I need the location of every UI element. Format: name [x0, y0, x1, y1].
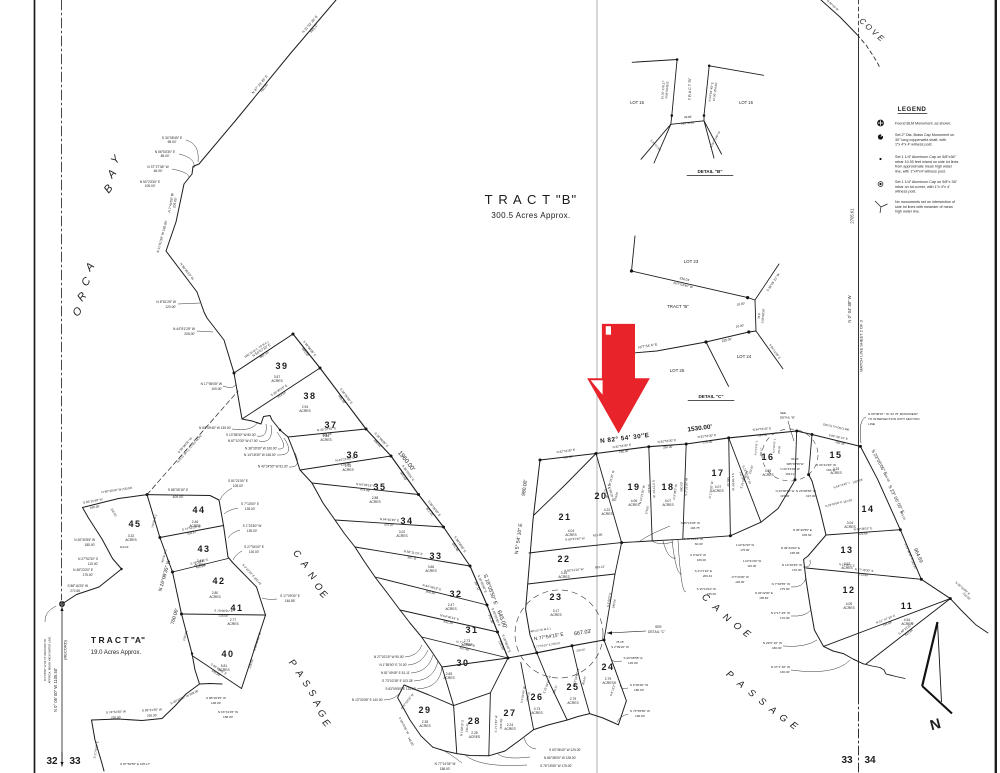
- svg-text:No monuments set on inters: No monuments set on intersection of: [895, 200, 956, 204]
- svg-text:300.5 Acres Approx.: 300.5 Acres Approx.: [491, 211, 570, 220]
- svg-text:ACRES: ACRES: [565, 533, 577, 537]
- svg-text:38: 38: [303, 391, 316, 401]
- svg-text:30″ long copperweld shaft, wit: 30″ long copperweld shaft, with: [895, 138, 946, 142]
- svg-text:T R A C T "A": T R A C T "A": [91, 635, 145, 645]
- svg-text:1.02°32′30″ W: 1.02°32′30″ W: [736, 543, 755, 547]
- svg-text:175.00': 175.00': [83, 573, 94, 577]
- svg-text:272.65: 272.65: [70, 589, 80, 593]
- svg-text:60.00': 60.00': [695, 542, 704, 546]
- svg-text:42: 42: [212, 576, 225, 586]
- svg-text:205.00': 205.00': [184, 332, 195, 336]
- svg-text:high water line.: high water line.: [895, 210, 920, 214]
- svg-text:ACRES: ACRES: [396, 534, 408, 538]
- svg-text:ACRES: ACRES: [445, 607, 457, 611]
- svg-text:N 63°31′45″ W: N 63°31′45″ W: [218, 710, 238, 714]
- svg-text:139.00': 139.00': [247, 529, 258, 533]
- svg-text:145.00': 145.00': [628, 661, 638, 665]
- svg-text:N 13°30′55″ E 140.00′: N 13°30′55″ E 140.00′: [352, 698, 383, 702]
- svg-text:31: 31: [465, 625, 478, 635]
- svg-text:579.87': 579.87': [647, 484, 651, 494]
- svg-text:S 0°02′2″ W: S 0°02′2″ W: [690, 553, 706, 557]
- svg-text:20: 20: [594, 491, 607, 501]
- svg-text:33: 33: [841, 755, 853, 766]
- svg-text:250.00': 250.00': [147, 713, 158, 718]
- svg-text:Set 1 1/4″ Aluminum Cap on 5/: Set 1 1/4″ Aluminum Cap on 5/8″x36″: [895, 155, 957, 159]
- svg-text:DETAIL "B": DETAIL "B": [780, 416, 795, 420]
- svg-text:Set 2″ Dia. Brass Cap Monument: Set 2″ Dia. Brass Cap Monument on: [895, 133, 954, 137]
- svg-text:S 63°36′40″ W 125.00′: S 63°36′40″ W 125.00′: [549, 748, 581, 752]
- svg-text:99.86': 99.86': [791, 457, 799, 461]
- svg-text:193.11': 193.11': [826, 468, 836, 472]
- svg-text:13: 13: [840, 545, 853, 555]
- svg-text:105.62': 105.62': [802, 533, 812, 537]
- svg-text:ACRES: ACRES: [550, 613, 562, 617]
- svg-text:25: 25: [566, 682, 579, 692]
- svg-text:110.23: 110.23: [120, 545, 129, 549]
- svg-text:130.00': 130.00': [780, 670, 790, 674]
- svg-text:30: 30: [456, 658, 469, 668]
- svg-text:S 7°13′00″ E: S 7°13′00″ E: [241, 502, 259, 506]
- svg-text:580.00': 580.00': [679, 481, 683, 491]
- svg-text:37: 37: [324, 420, 337, 430]
- svg-text:LOT 15: LOT 15: [739, 100, 754, 105]
- svg-text:ACRES: ACRES: [558, 575, 570, 579]
- svg-text:ACRES: ACRES: [194, 563, 206, 567]
- svg-text:LOT 25: LOT 25: [670, 368, 685, 373]
- svg-text:S 87°50′55″ E 105.17′: S 87°50′55″ E 105.17′: [120, 762, 150, 766]
- svg-text:ACRES: ACRES: [189, 524, 201, 528]
- svg-text:N 0° 06′ 00″ W 1105.50′: N 0° 06′ 00″ W 1105.50′: [53, 668, 58, 712]
- svg-text:ACRES: ACRES: [218, 668, 230, 672]
- svg-text:ACRES: ACRES: [342, 468, 354, 472]
- svg-text:ACRES: ACRES: [209, 595, 221, 599]
- svg-text:33: 33: [69, 756, 81, 767]
- svg-text:190.00': 190.00': [635, 714, 645, 718]
- svg-text:S 2°09′20″ W: S 2°09′20″ W: [611, 645, 629, 649]
- svg-text:ACRES: ACRES: [227, 622, 239, 626]
- svg-text:N 38°39′30″ W 160.00′: N 38°39′30″ W 160.00′: [245, 447, 277, 451]
- svg-text:41: 41: [230, 603, 243, 613]
- svg-text:DETAIL "B": DETAIL "B": [697, 169, 722, 174]
- svg-text:N 34°31′45″ W: N 34°31′45″ W: [816, 463, 836, 467]
- svg-text:197.00': 197.00': [780, 494, 790, 498]
- svg-text:32: 32: [46, 756, 58, 767]
- svg-text:100.00': 100.00': [211, 387, 222, 391]
- svg-text:from approximate mean high wat: from approximate mean high water: [895, 165, 953, 169]
- svg-text:S 20°08′55″ E: S 20°08′55″ E: [623, 656, 642, 660]
- svg-text:APPROX. MEAN HIGH WATER LINE: APPROX. MEAN HIGH WATER LINE: [48, 637, 52, 684]
- svg-text:SEE: SEE: [655, 625, 663, 629]
- svg-text:ACRES: ACRES: [843, 606, 855, 610]
- svg-text:N 23°08′50″ W: N 23°08′50″ W: [796, 489, 816, 493]
- svg-text:46.00': 46.00': [154, 169, 163, 173]
- svg-text:N 48°23′20″ E: N 48°23′20″ E: [73, 568, 93, 572]
- svg-text:N 1°55′00″ E 70.00′: N 1°55′00″ E 70.00′: [379, 663, 407, 667]
- svg-text:N 49°42′00″ E: N 49°42′00″ E: [781, 546, 800, 550]
- svg-text:36: 36: [346, 450, 359, 460]
- svg-text:146.85': 146.85': [285, 599, 296, 603]
- svg-text:Found BLM Monument, as shown: Found BLM Monument, as shown.: [895, 122, 951, 126]
- svg-text:(343.43): (343.43): [499, 718, 503, 729]
- svg-text:195.84': 195.84': [790, 551, 800, 555]
- svg-text:S85°45′55″W: S85°45′55″W: [786, 462, 803, 466]
- svg-text:115.00': 115.00': [88, 562, 99, 566]
- svg-text:35: 35: [373, 482, 386, 492]
- svg-text:586.43': 586.43': [726, 477, 730, 487]
- svg-text:witness post.: witness post.: [895, 190, 916, 194]
- svg-text:28: 28: [468, 716, 481, 726]
- svg-text:rebar 10.00 feet inland on sid: rebar 10.00 feet inland on side lot line…: [895, 160, 959, 164]
- svg-text:148.00': 148.00': [211, 701, 221, 705]
- svg-text:N 47°1′ 30″ W: N 47°1′ 30″ W: [771, 665, 790, 669]
- svg-text:N 8°51′25″ W: N 8°51′25″ W: [156, 300, 176, 304]
- svg-text:S 76°15′50″ W 175.00′: S 76°15′50″ W 175.00′: [540, 764, 572, 768]
- svg-text:15: 15: [829, 450, 842, 460]
- svg-text:DETAIL "C": DETAIL "C": [698, 394, 723, 399]
- svg-text:78.15': 78.15': [616, 640, 625, 644]
- svg-text:ACRES: ACRES: [531, 711, 543, 715]
- svg-text:220.00': 220.00': [111, 715, 122, 720]
- svg-text:180.00': 180.00': [634, 688, 644, 692]
- svg-text:S 15°10′10″ W: S 15°10′10″ W: [697, 587, 717, 591]
- svg-text:S 49°00′15″ W: S 49°00′15″ W: [684, 537, 704, 541]
- svg-text:TO INTERSECTION WITH SECTION: TO INTERSECTION WITH SECTION: [868, 417, 920, 421]
- svg-text:N 27°52′30″ S: N 27°52′30″ S: [78, 557, 98, 561]
- svg-text:S 63°59′50″ E 115.00′: S 63°59′50″ E 115.00′: [385, 687, 416, 691]
- svg-text:45: 45: [128, 519, 141, 529]
- svg-text:185.00': 185.00': [85, 543, 96, 547]
- svg-text:N 43°24′50″ W 92.20′: N 43°24′50″ W 92.20′: [258, 465, 289, 469]
- svg-text:65.00': 65.00': [168, 140, 177, 144]
- svg-text:DETAIL "C": DETAIL "C": [648, 630, 666, 634]
- svg-text:ACRES: ACRES: [125, 538, 137, 542]
- svg-text:S 86°16′35″ W: S 86°16′35″ W: [681, 521, 701, 525]
- svg-text:12: 12: [842, 585, 855, 595]
- svg-text:ACRES: ACRES: [320, 438, 332, 442]
- svg-text:175.00': 175.00': [780, 587, 790, 591]
- svg-text:536.06': 536.06': [219, 614, 229, 618]
- svg-text:39: 39: [275, 361, 288, 371]
- svg-text:ACRES: ACRES: [901, 622, 913, 626]
- svg-text:rebar on lot corner, with 1″x: rebar on lot corner, with 1″x 4″x 4′: [895, 185, 950, 189]
- svg-text:LOT 24: LOT 24: [737, 354, 752, 359]
- svg-text:LINE: LINE: [868, 422, 875, 426]
- svg-text:LOT 23: LOT 23: [684, 259, 699, 264]
- svg-text:115.00': 115.00': [747, 564, 757, 568]
- svg-text:˙19.0 Acres Approx.: ˙19.0 Acres Approx.: [89, 650, 142, 656]
- svg-text:N 34°3′4′45″ W: N 34°3′4′45″ W: [780, 467, 800, 471]
- svg-text:476.87': 476.87': [384, 523, 395, 528]
- svg-text:N 7°36′55″ W: N 7°36′55″ W: [772, 582, 790, 586]
- svg-text:S 4°2′1′10″ E: S 4°2′1′10″ E: [695, 569, 712, 573]
- svg-text:22: 22: [557, 554, 570, 564]
- svg-text:S 2°23′20″ W: S 2°23′20″ W: [684, 478, 689, 496]
- svg-text:43: 43: [197, 544, 210, 554]
- svg-text:621.85': 621.85': [593, 533, 603, 538]
- svg-text:N 45°46′55″ E: N 45°46′55″ E: [793, 528, 812, 532]
- svg-text:LEGEND: LEGEND: [898, 106, 927, 113]
- svg-text:400.00': 400.00': [173, 495, 184, 499]
- svg-text:line, with 1″x4″x4′ witness po: line, with 1″x4″x4′ witness post.: [895, 169, 946, 173]
- svg-text:ACRES: ACRES: [369, 500, 381, 504]
- svg-text:S 6°40′40″ W: S 6°40′40″ W: [630, 683, 648, 687]
- svg-text:158.00': 158.00': [223, 715, 233, 719]
- svg-text:1″x 4″x 4′ witness post.: 1″x 4″x 4′ witness post.: [895, 143, 933, 147]
- svg-text:27: 27: [503, 708, 516, 718]
- svg-text:N 81°49′45″ E 51.11′: N 81°49′45″ E 51.11′: [381, 671, 410, 675]
- svg-text:24: 24: [601, 662, 614, 672]
- svg-text:N 0° 04′ 38″ W: N 0° 04′ 38″ W: [847, 295, 852, 322]
- svg-text:S 73°02′35″ E 103.28′: S 73°02′35″ E 103.28′: [382, 679, 413, 683]
- svg-text:ACRES: ACRES: [567, 701, 579, 705]
- svg-text:T R A C T "B": T R A C T "B": [485, 192, 578, 207]
- svg-text:135.00': 135.00': [245, 507, 256, 511]
- svg-text:21: 21: [558, 512, 571, 522]
- svg-text:S 0°27′10″ W: S 0°27′10″ W: [652, 480, 657, 498]
- svg-text:S 1°23′50″ W: S 1°23′50″ W: [243, 524, 262, 528]
- svg-text:120.00': 120.00': [165, 305, 176, 309]
- svg-text:ACRES: ACRES: [419, 724, 431, 728]
- svg-text:N 2°17′ 45″ W: N 2°17′ 45″ W: [771, 611, 790, 615]
- svg-text:(RECORD): (RECORD): [63, 639, 68, 660]
- svg-text:146.00': 146.00': [735, 580, 745, 584]
- svg-text:65.00': 65.00': [161, 154, 170, 158]
- svg-text:11: 11: [901, 601, 914, 611]
- svg-text:177°34′90″ W: 177°34′90″ W: [731, 575, 749, 579]
- svg-text:26: 26: [530, 692, 543, 702]
- svg-text:S 88°35′15″ E: S 88°35′15″ E: [168, 488, 189, 492]
- svg-text:S 27°54′00″ E: S 27°54′00″ E: [244, 545, 264, 549]
- svg-text:ACRES: ACRES: [712, 489, 724, 493]
- svg-text:N 23°06′30″ W: N 23°06′30″ W: [776, 489, 795, 493]
- svg-text:N 26°30′55″ W: N 26°30′55″ W: [74, 538, 95, 542]
- svg-text:99.86': 99.86': [684, 115, 692, 120]
- svg-text:200.43: 200.43: [703, 574, 713, 578]
- svg-text:188.00': 188.00': [440, 767, 451, 771]
- svg-text:Set 1 1/4″ Aluminum Cap on 5/: Set 1 1/4″ Aluminum Cap on 5/8″x 36″: [895, 180, 958, 184]
- svg-text:2705.61: 2705.61: [850, 208, 855, 224]
- svg-text:264.69: 264.69: [777, 445, 782, 454]
- svg-text:N 49°42′00″ E: N 49°42′00″ E: [755, 591, 773, 595]
- svg-text:ACRES: ACRES: [662, 503, 674, 507]
- svg-text:193.11': 193.11': [785, 472, 795, 476]
- svg-text:23: 23: [549, 592, 562, 602]
- svg-text:ACRES: ACRES: [844, 525, 856, 529]
- svg-text:ACRES: ACRES: [461, 643, 473, 647]
- svg-text:170.00': 170.00': [780, 616, 790, 620]
- svg-text:40: 40: [221, 649, 234, 659]
- svg-text:S 13°58′30″ W 80.00′: S 13°58′30″ W 80.00′: [226, 433, 256, 437]
- svg-text:197.00': 197.00': [806, 494, 816, 498]
- svg-text:ACRES: ACRES: [601, 512, 613, 516]
- svg-text:523.86': 523.86': [858, 531, 868, 536]
- svg-text:ACRES: ACRES: [504, 727, 516, 731]
- svg-text:14: 14: [861, 504, 874, 514]
- svg-text:32: 32: [449, 589, 462, 599]
- svg-text:N 44°5′1′25″ W: N 44°5′1′25″ W: [173, 327, 196, 331]
- svg-text:33: 33: [429, 551, 442, 561]
- svg-text:196.75': 196.75': [690, 526, 700, 530]
- svg-text:1.03°31′30″ W: 1.03°31′30″ W: [743, 559, 762, 563]
- svg-text:29: 29: [418, 705, 431, 715]
- svg-text:S 81°21′50″ E: S 81°21′50″ E: [228, 479, 248, 483]
- svg-text:17: 17: [711, 468, 724, 478]
- svg-text:S 1°17′45″ W: S 1°17′45″ W: [494, 715, 499, 732]
- svg-text:side lot lines with meande: side lot lines with meander of mean: [895, 205, 953, 209]
- svg-text:170.00': 170.00': [792, 568, 802, 572]
- svg-text:ACRES: ACRES: [602, 681, 614, 685]
- svg-text:N 77°14′35″ W: N 77°14′35″ W: [435, 762, 456, 766]
- svg-text:105.00': 105.00': [145, 184, 156, 188]
- svg-text:S 88°20′25″ W: S 88°20′25″ W: [206, 696, 226, 700]
- svg-text:34: 34: [400, 516, 413, 526]
- svg-text:S 17°09′30″ E: S 17°09′30″ E: [280, 594, 300, 598]
- svg-text:ACRES: ACRES: [469, 735, 481, 739]
- svg-text:N 0°08′00″ W 93.73′ RECORD TO: N 0°08′00″ W 93.73′ RECORD TO: [43, 638, 47, 681]
- svg-text:N 86°38′00″ W 128.00′: N 86°38′00″ W 128.00′: [544, 756, 576, 760]
- svg-text:N 14°18′30″ W 148.00′: N 14°18′30″ W 148.00′: [244, 453, 276, 457]
- svg-text:ACRES: ACRES: [425, 569, 437, 573]
- svg-text:N 80°08′15 ″ W, 52.75′ MONUMEN: N 80°08′15 ″ W, 52.75′ MONUMENT: [868, 412, 918, 416]
- svg-text:TRACT "B": TRACT "B": [667, 304, 689, 309]
- svg-text:175.00': 175.00': [740, 548, 750, 552]
- svg-text:S 73°55′50″ W: S 73°55′50″ W: [630, 709, 650, 713]
- svg-text:19: 19: [627, 482, 640, 492]
- svg-text:T R A C T "B": T R A C T "B": [688, 77, 692, 100]
- svg-text:SEE: SEE: [780, 411, 786, 415]
- svg-text:S 88°16′25″ W: S 88°16′25″ W: [67, 584, 88, 588]
- svg-text:260.17': 260.17': [759, 447, 764, 456]
- svg-text:N 27°02′15″ W 90.00′: N 27°02′15″ W 90.00′: [374, 655, 405, 659]
- svg-text:N 63°49′45″ W 135.00′: N 63°49′45″ W 135.00′: [199, 426, 231, 430]
- svg-text:ACRES: ACRES: [299, 409, 311, 413]
- svg-text:N 87°10′30″ W 47.00′: N 87°10′30″ W 47.00′: [228, 439, 259, 443]
- svg-text:N 14°26′45″ W: N 14°26′45″ W: [782, 563, 802, 567]
- svg-text:44: 44: [192, 505, 205, 515]
- svg-text:166.00: 166.00: [697, 558, 707, 562]
- svg-text:195.84': 195.84': [759, 596, 769, 600]
- svg-text:130.00': 130.00': [249, 550, 260, 554]
- svg-text:S 1°36′35″ W: S 1°36′35″ W: [731, 473, 735, 491]
- svg-text:34: 34: [864, 755, 876, 766]
- svg-text:ACRES: ACRES: [271, 379, 283, 383]
- svg-text:MATCH LINE SHEET 2 OF 3: MATCH LINE SHEET 2 OF 3: [859, 319, 864, 371]
- svg-text:105.00': 105.00': [233, 484, 244, 488]
- svg-text:180.00': 180.00': [772, 646, 782, 650]
- svg-text:LOT 16: LOT 16: [630, 100, 645, 105]
- svg-text:N 17°56′05″ W: N 17°56′05″ W: [201, 382, 223, 386]
- svg-text:N 29°0′ 20″ W: N 29°0′ 20″ W: [763, 641, 782, 645]
- svg-text:ACRES: ACRES: [762, 473, 774, 477]
